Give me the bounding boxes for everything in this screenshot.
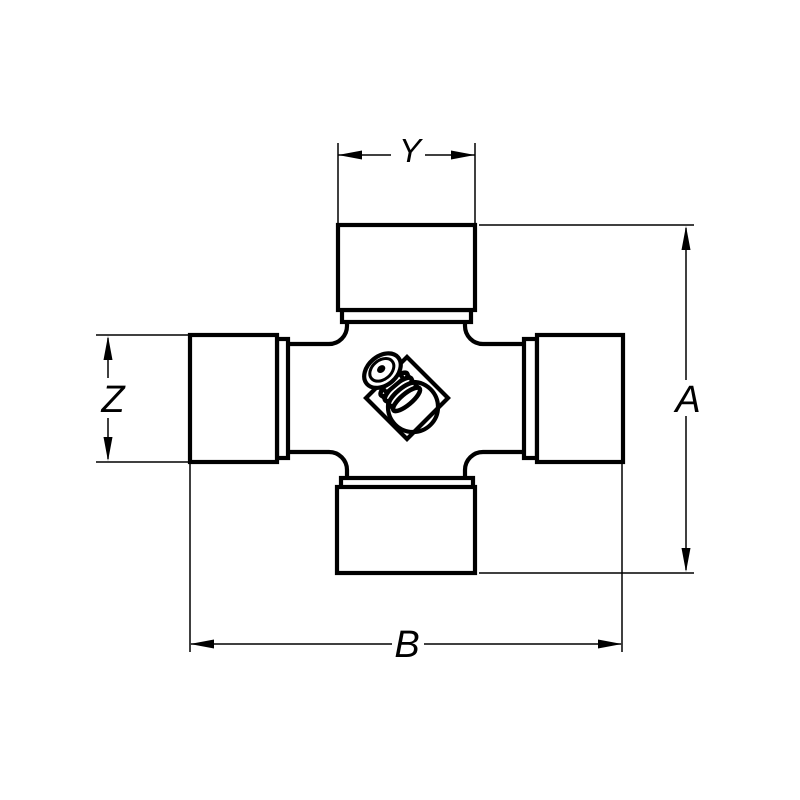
dimension-y-label: Y (399, 132, 423, 169)
dimension-z-arrow-bottom (104, 437, 113, 461)
dimension-z-arrow-top (104, 336, 113, 360)
dimension-b-arrow-right (598, 640, 622, 649)
right-bearing-cup (537, 335, 623, 462)
u-joint-cross-diagram: Y A Z B (0, 0, 800, 800)
dimension-y: Y (338, 132, 475, 224)
dimension-b-label: B (394, 624, 419, 666)
bottom-bearing-cup (337, 487, 475, 573)
dimension-a-label: A (673, 379, 700, 421)
dimension-b-arrow-left (190, 640, 214, 649)
dimension-z: Z (96, 335, 188, 462)
dimension-a-arrow-top (682, 226, 691, 250)
dimension-a-arrow-bottom (682, 548, 691, 572)
dimension-y-arrow-left (338, 151, 362, 160)
drawing-canvas: Y A Z B (0, 0, 800, 800)
left-bearing-cup (190, 335, 277, 462)
top-bearing-cup (338, 225, 475, 310)
dimension-y-arrow-right (451, 151, 475, 160)
dimension-z-label: Z (100, 379, 126, 421)
